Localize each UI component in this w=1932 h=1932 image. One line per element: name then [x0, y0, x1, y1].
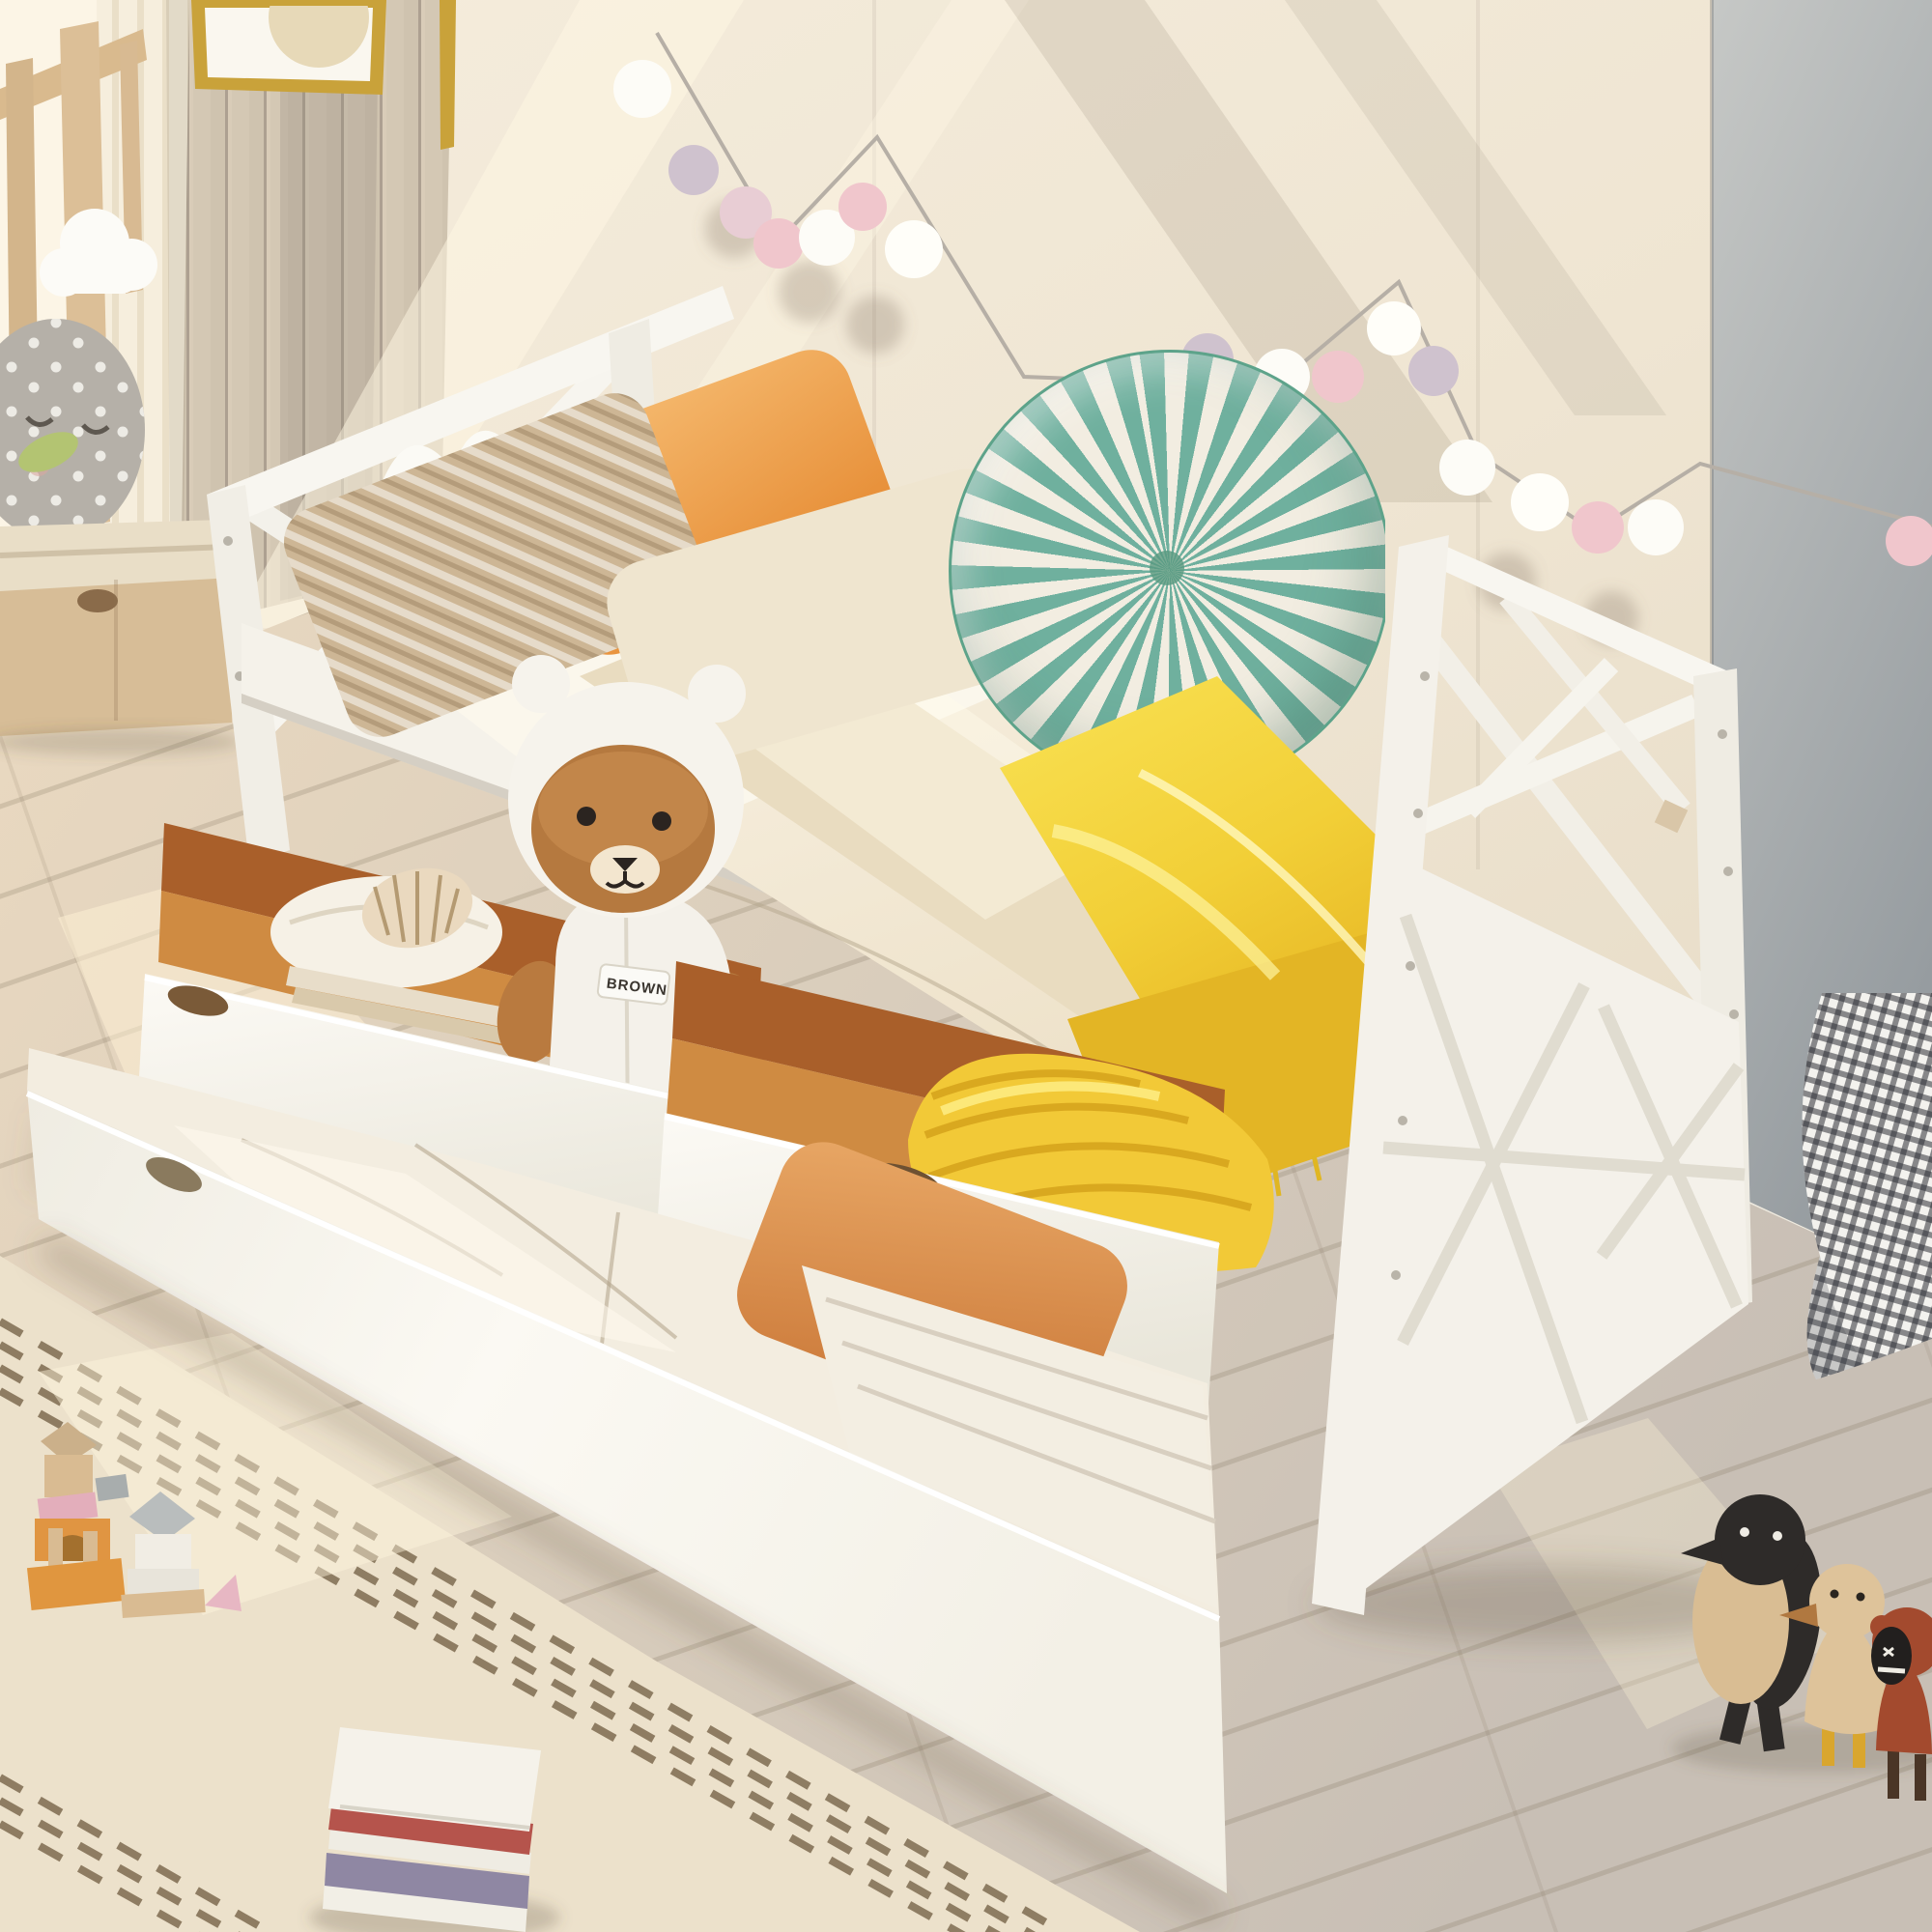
red-duck-beak-band	[1878, 1669, 1905, 1671]
scene-canvas: BROWN	[0, 0, 1932, 1932]
penguin-eye-right	[1773, 1531, 1782, 1541]
red-duck-leg-right	[1915, 1754, 1926, 1801]
screw	[1729, 1009, 1739, 1019]
pom-white	[1511, 473, 1569, 531]
penguin-eye-left	[1740, 1527, 1749, 1537]
pom-white	[885, 220, 943, 278]
cloud-base	[54, 259, 137, 294]
pom-white	[613, 60, 671, 118]
stacked-books	[309, 1727, 560, 1932]
pom-shadow	[846, 296, 904, 354]
pom-white	[1439, 440, 1495, 496]
pom-pink	[1572, 501, 1624, 554]
duck-eye-left	[1831, 1590, 1839, 1599]
screw	[1398, 1116, 1407, 1125]
duck-eye-right	[1857, 1593, 1865, 1602]
bear-eye-left	[577, 807, 596, 826]
block-house-body	[44, 1455, 93, 1497]
pom-white	[1367, 301, 1421, 355]
pom-lavender	[668, 145, 719, 195]
block-white-house	[135, 1534, 191, 1573]
bedroom-scene: BROWN	[0, 0, 1932, 1932]
pom-pink	[753, 218, 804, 269]
screw	[1413, 809, 1423, 818]
bear-eye-right	[652, 811, 671, 831]
gingham-floor-cushion	[1802, 993, 1932, 1379]
headboard-screw	[223, 536, 233, 546]
block-gray	[95, 1474, 128, 1501]
screw	[1723, 867, 1733, 876]
pinwheel-hub	[1150, 551, 1184, 585]
pom-lavender	[1408, 346, 1459, 396]
screw	[1420, 671, 1430, 681]
bench-drawer-handle	[77, 589, 118, 612]
screw	[1406, 961, 1415, 971]
pom-pink	[838, 183, 887, 231]
gold-trim-strip	[440, 0, 456, 150]
block-white-arch	[128, 1569, 199, 1594]
red-duck-leg-left	[1888, 1748, 1899, 1799]
block-cylinder-1	[48, 1528, 63, 1571]
screw	[1718, 729, 1727, 739]
picture-frame	[191, 0, 386, 95]
screw	[1391, 1270, 1401, 1280]
bench-shadow	[0, 728, 241, 755]
penguin-head	[1715, 1494, 1805, 1585]
pom-shadow	[779, 261, 840, 323]
pom-white	[1628, 499, 1684, 555]
